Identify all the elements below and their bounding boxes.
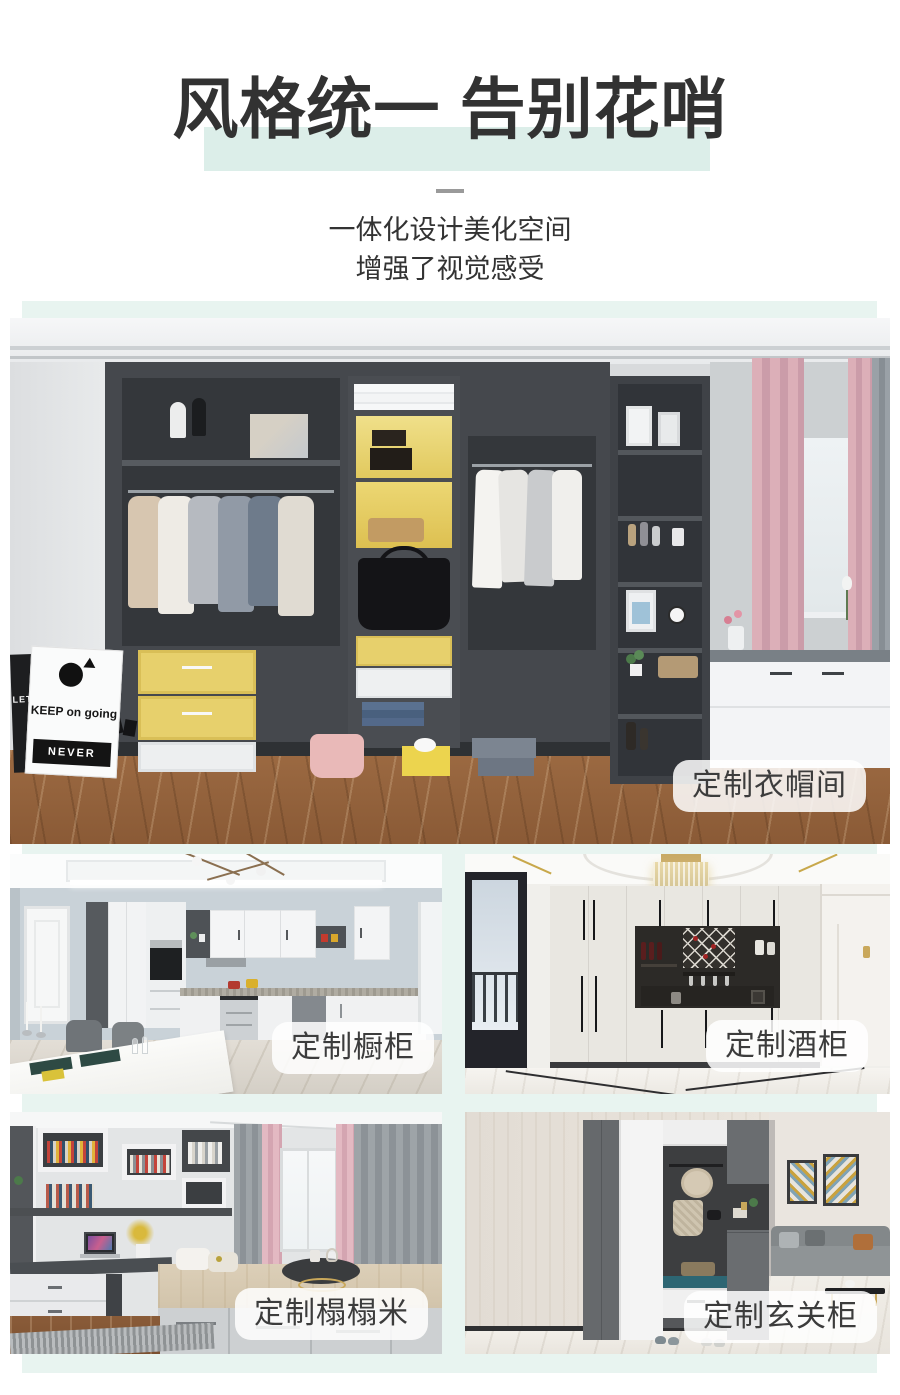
cat-ear-graphic: [83, 657, 96, 668]
white-drawer: [356, 668, 452, 698]
label-badge-cloakroom: 定制衣帽间: [673, 760, 866, 812]
door-seam: [727, 1232, 769, 1233]
binoculars: [707, 1210, 721, 1220]
niche-frame: [751, 990, 765, 1004]
drawer-seam: [10, 1300, 106, 1302]
white-box-shelf: [182, 1178, 226, 1208]
plant-pot: [630, 664, 642, 676]
dishwasher-line: [226, 1012, 252, 1014]
folded-towels: [354, 384, 454, 410]
wine-bottle: [657, 942, 662, 960]
wine-bottle: [641, 942, 646, 960]
sideboard-seam: [710, 706, 890, 708]
photo-custom-kitchen: 定制橱柜: [10, 854, 442, 1094]
books-row: [47, 1141, 99, 1163]
candle-holder: [36, 1032, 46, 1038]
built-in-oven: [150, 948, 182, 980]
photo-custom-entry-cabinet: 定制玄关柜: [465, 1112, 890, 1354]
upper-cabinets: [210, 910, 316, 958]
tall-side-cabinet: [10, 1126, 36, 1266]
dishwasher-line: [226, 1024, 252, 1026]
gift-box: [372, 430, 406, 446]
white-drawer: [138, 742, 256, 772]
books-row: [46, 1184, 94, 1208]
laptop-base: [80, 1254, 120, 1258]
vase: [728, 626, 744, 650]
lily-flower: [842, 576, 852, 590]
shirt-item: [552, 470, 582, 580]
deer-ornament-white: [170, 402, 186, 438]
cabinet-handle: [238, 930, 240, 940]
niche-shelf: [641, 964, 677, 967]
gift-box: [370, 448, 412, 470]
title-divider: [436, 189, 464, 193]
drawer-handle: [48, 1310, 62, 1313]
chandelier-globe: [226, 876, 235, 885]
photo-custom-wine-cabinet: 定制酒柜: [465, 854, 890, 1094]
open-shelf: [727, 1184, 769, 1230]
long-black-handle: [583, 900, 585, 940]
candle: [26, 1002, 28, 1030]
poster-text: KEEP on going: [29, 703, 120, 722]
cabinet-handle: [360, 928, 362, 938]
label-badge-wine: 定制酒柜: [706, 1020, 868, 1072]
folded-jeans: [362, 702, 424, 726]
photo-custom-tatami: 定制榻榻米: [10, 1112, 442, 1354]
tissue-puff: [414, 738, 436, 752]
door-seam: [740, 886, 741, 926]
sofa-pillow: [805, 1230, 825, 1246]
clothes-rod: [472, 464, 592, 467]
storage-box: [250, 414, 308, 458]
slipper: [668, 1337, 679, 1345]
drawer-seam: [150, 1008, 182, 1010]
coat-item: [278, 496, 314, 616]
slipper: [655, 1336, 666, 1344]
door-seam: [244, 910, 245, 958]
candle-holder: [22, 1030, 32, 1036]
hanging-glass: [725, 976, 729, 986]
teal-cushion: [663, 1276, 727, 1288]
shelf-board-long: [10, 1208, 232, 1216]
plant-leaf: [634, 650, 644, 660]
canister: [672, 528, 684, 546]
gold-decor: [741, 1202, 747, 1210]
gray-curtain: [872, 358, 890, 650]
tall-cabinet-doors: [108, 902, 146, 1028]
white-art-poster: KEEP on going NEVER: [25, 646, 124, 779]
art-frame: [787, 1160, 817, 1204]
laptop-wallpaper: [88, 1236, 112, 1250]
label-badge-tatami: 定制榻榻米: [235, 1288, 428, 1340]
shelf-board: [618, 714, 702, 719]
dining-chair: [66, 1020, 102, 1052]
leather-bag: [681, 1262, 715, 1276]
moon-graphic: [58, 662, 83, 687]
flower: [734, 610, 742, 618]
books-row: [188, 1142, 222, 1164]
yellow-cup: [331, 934, 338, 942]
drawer-seam: [228, 1308, 230, 1354]
shelf-pot: [199, 934, 205, 942]
long-black-handle: [661, 1010, 663, 1048]
sofa-pillow: [779, 1232, 799, 1248]
wine-bottle-cap: [711, 944, 716, 949]
table-decor: [845, 1280, 855, 1288]
sideboard-body: [710, 662, 890, 768]
long-black-handle: [593, 900, 595, 940]
wine-glass: [142, 1036, 148, 1054]
wine-glass: [132, 1038, 138, 1054]
books-row: [130, 1155, 170, 1173]
shelf-board: [618, 648, 702, 653]
wine-bottle-cap: [693, 936, 698, 941]
pink-curtain: [752, 358, 804, 650]
red-pan: [228, 981, 240, 989]
white-canister: [755, 940, 764, 955]
white-box-shelf: [122, 1144, 176, 1180]
shelf-board: [618, 582, 702, 587]
clock: [668, 606, 686, 624]
tall-cabinet-dark-panel: [86, 902, 108, 1028]
door-seam: [280, 910, 281, 958]
wall-lamp: [863, 946, 870, 958]
label-badge-kitchen: 定制橱柜: [272, 1022, 434, 1074]
shelf-plant: [190, 932, 197, 939]
door-seam: [702, 886, 703, 926]
drawer-handle: [48, 1286, 62, 1289]
pillow-pattern: [216, 1256, 222, 1262]
crown-molding: [10, 346, 890, 350]
woven-basket: [658, 656, 698, 678]
deer-ornament-black: [192, 398, 206, 436]
window-mullion: [307, 1148, 309, 1252]
sideboard-top: [710, 650, 890, 662]
cabinet-handle: [286, 930, 288, 940]
cabinet-top-box: [663, 1120, 727, 1146]
drawer-seam: [150, 990, 182, 992]
decanter: [671, 992, 681, 1004]
bottle: [652, 526, 660, 546]
subtitle-line-1: 一体化设计美化空间: [0, 211, 900, 250]
candle: [40, 1006, 42, 1032]
door-seam: [588, 886, 589, 1062]
railing-top-bar: [472, 972, 518, 975]
long-black-handle: [595, 976, 597, 1032]
shelf-board: [618, 516, 702, 521]
yellow-drawer: [356, 636, 452, 666]
label-badge-entry: 定制玄关柜: [684, 1291, 877, 1343]
range-hood: [206, 958, 246, 967]
long-black-handle: [581, 976, 583, 1032]
laptop-screen: [84, 1232, 116, 1254]
pink-handbag: [310, 734, 364, 778]
yellow-drawer: [138, 650, 256, 694]
red-cup: [321, 934, 328, 942]
door-panel: [34, 920, 60, 1008]
chandelier-globe: [192, 856, 202, 866]
flower: [724, 616, 732, 624]
chandelier-globe: [256, 866, 266, 876]
hanging-glass: [701, 976, 705, 986]
drawer-handle: [182, 712, 212, 715]
table-decor-glass: [326, 1248, 338, 1262]
promo-page: 风格统一 告别花哨 一体化设计美化空间 增强了视觉感受: [0, 0, 900, 1395]
granite-counter: [180, 988, 426, 996]
wine-bottle: [649, 942, 654, 960]
dark-vase: [640, 728, 648, 750]
table-decor: [310, 1250, 320, 1262]
drawer-handle: [182, 666, 212, 669]
cabinet-white-panel: [619, 1120, 663, 1340]
dark-vase: [626, 722, 636, 750]
hanging-glass: [713, 976, 717, 986]
page-subtitle: 一体化设计美化空间 增强了视觉感受: [0, 211, 900, 289]
faucet: [340, 1004, 342, 1018]
dishwasher: [220, 996, 258, 1040]
photo-frame: [626, 406, 652, 446]
art-frame-picture: [632, 602, 650, 624]
hook-rail: [669, 1164, 723, 1167]
poster-text-band: NEVER: [32, 739, 111, 767]
pillow: [208, 1252, 238, 1272]
window-right: [418, 902, 442, 1034]
sofa-pillow-orange: [853, 1234, 873, 1250]
oven-control-strip: [150, 940, 182, 948]
pink-curtain: [848, 358, 874, 650]
plant-leaf: [14, 1176, 23, 1185]
hallway-molding: [820, 894, 890, 896]
gray-box: [478, 758, 534, 776]
shelf-plant: [749, 1198, 758, 1207]
pillow: [176, 1248, 210, 1270]
clothes-rod: [128, 490, 334, 493]
door-seam: [601, 1120, 602, 1340]
shelf-board: [618, 450, 702, 455]
door-seam: [664, 886, 665, 926]
yellow-pot: [246, 979, 258, 988]
woven-bag: [673, 1200, 703, 1236]
subtitle-line-2: 增强了视觉感受: [0, 250, 900, 289]
lily-stem: [846, 586, 848, 620]
bottle: [628, 524, 636, 546]
window: [280, 1148, 338, 1252]
bottle: [640, 522, 648, 546]
yellow-drawer: [138, 696, 256, 740]
white-box-shelf: [38, 1128, 108, 1172]
hanging-glass: [689, 976, 693, 986]
page-title: 风格统一 告别花哨: [0, 72, 900, 148]
black-handbag: [358, 558, 450, 630]
open-dark-shelf: [182, 1130, 230, 1172]
sofa-seat: [771, 1246, 890, 1276]
door-seam: [626, 886, 627, 1062]
door-seam: [126, 902, 127, 1028]
sideboard-handle: [822, 672, 844, 675]
art-frame: [823, 1154, 859, 1206]
white-canister: [767, 942, 775, 955]
balcony-railing: [472, 974, 518, 1022]
sun-hat: [681, 1168, 713, 1198]
leather-basket: [368, 518, 424, 542]
sideboard-handle: [770, 672, 792, 675]
wine-bottle-cap: [703, 954, 708, 959]
gray-box: [472, 738, 536, 758]
photo-custom-cloakroom: LET BUI KEEP on going NEVER 定制衣帽间: [10, 318, 890, 844]
photo-frame: [658, 412, 680, 446]
wine-lattice-rack: [683, 928, 735, 968]
